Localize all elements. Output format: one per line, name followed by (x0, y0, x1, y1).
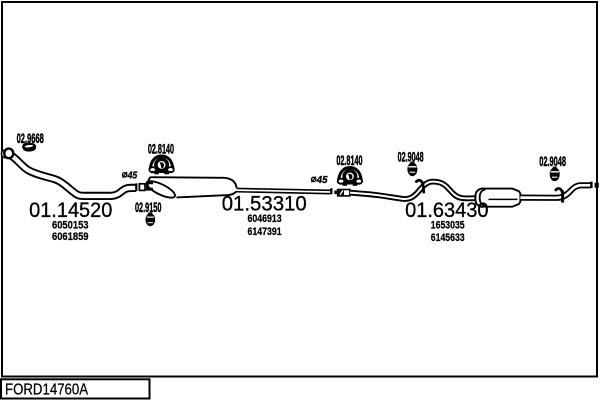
svg-text:6147391: 6147391 (248, 226, 283, 238)
svg-text:02.8140: 02.8140 (336, 154, 362, 169)
svg-text:45: 45 (127, 170, 138, 182)
svg-text:1653035: 1653035 (431, 219, 465, 231)
svg-text:6145633: 6145633 (431, 232, 465, 244)
svg-text:45: 45 (316, 175, 328, 186)
svg-text:6046913: 6046913 (248, 213, 283, 225)
svg-text:02.9048: 02.9048 (539, 155, 566, 170)
svg-text:02.9150: 02.9150 (135, 201, 161, 216)
svg-text:FORD14760A: FORD14760A (5, 382, 88, 399)
svg-text:6050153: 6050153 (52, 220, 89, 232)
svg-text:02.8140: 02.8140 (148, 142, 174, 157)
svg-text:01.14520: 01.14520 (29, 199, 112, 223)
svg-text:02.9668: 02.9668 (17, 132, 44, 147)
svg-text:02.9048: 02.9048 (398, 150, 424, 165)
svg-text:6061859: 6061859 (52, 232, 89, 244)
